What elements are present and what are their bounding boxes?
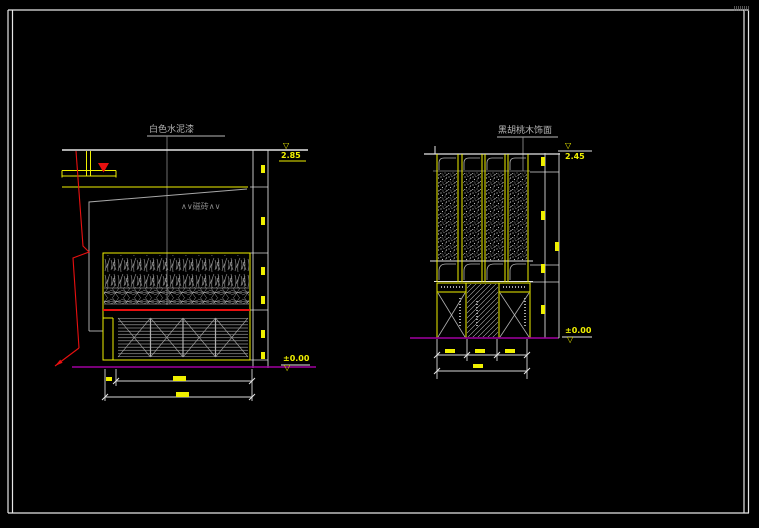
dim-text-tick bbox=[261, 296, 265, 304]
right-ground-level-value: ±0.00 bbox=[565, 327, 591, 335]
dim-text-tick bbox=[475, 349, 485, 353]
cad-linework bbox=[0, 0, 759, 528]
left-elevation-hatches bbox=[104, 255, 249, 357]
dim-text-tick bbox=[445, 349, 455, 353]
corner-artifact bbox=[734, 6, 750, 11]
dim-text-tick bbox=[176, 392, 189, 397]
dim-text-tick bbox=[261, 352, 265, 359]
dim-text-tick bbox=[541, 305, 545, 314]
right-top-level-value: 2.45 bbox=[565, 153, 585, 161]
left-finish-label: 白色水泥漆 bbox=[149, 126, 194, 135]
left-ground-level-symbol: ▽ bbox=[284, 364, 290, 372]
dim-text-tick bbox=[505, 349, 515, 353]
dim-text-tick bbox=[106, 377, 112, 381]
cad-drawing-canvas[interactable]: 白色水泥漆 ∧∨磁砖∧∨ ▽ 2.85 ±0.00 ▽ 黑胡桃木饰面 ▽ 2.4… bbox=[0, 0, 759, 528]
left-surface-note: ∧∨磁砖∧∨ bbox=[181, 203, 220, 211]
dim-text-tick bbox=[541, 264, 545, 273]
cabinet-text-strip bbox=[476, 300, 478, 326]
cabinet-text-strip bbox=[524, 298, 526, 326]
dim-text-tick bbox=[555, 242, 559, 251]
dim-text-tick bbox=[261, 217, 265, 225]
dim-text-tick bbox=[261, 267, 265, 275]
left-top-level-symbol: ▽ bbox=[283, 142, 289, 150]
right-top-level-symbol: ▽ bbox=[565, 142, 571, 150]
dim-text-tick bbox=[541, 211, 545, 220]
dim-text-tick bbox=[541, 157, 545, 166]
cabinet-text-strip bbox=[459, 298, 461, 326]
dim-text-tick bbox=[261, 165, 265, 173]
cabinet-text-strip bbox=[503, 286, 527, 288]
right-finish-label: 黑胡桃木饰面 bbox=[498, 127, 552, 136]
dim-text-tick bbox=[261, 330, 265, 338]
cabinet-text-strip bbox=[441, 286, 463, 288]
dim-text-tick bbox=[473, 364, 483, 368]
left-ground-level-value: ±0.00 bbox=[283, 355, 309, 363]
left-top-level-value: 2.85 bbox=[281, 152, 301, 160]
dim-text-tick bbox=[173, 376, 186, 381]
right-ground-level-symbol: ▽ bbox=[567, 336, 573, 344]
